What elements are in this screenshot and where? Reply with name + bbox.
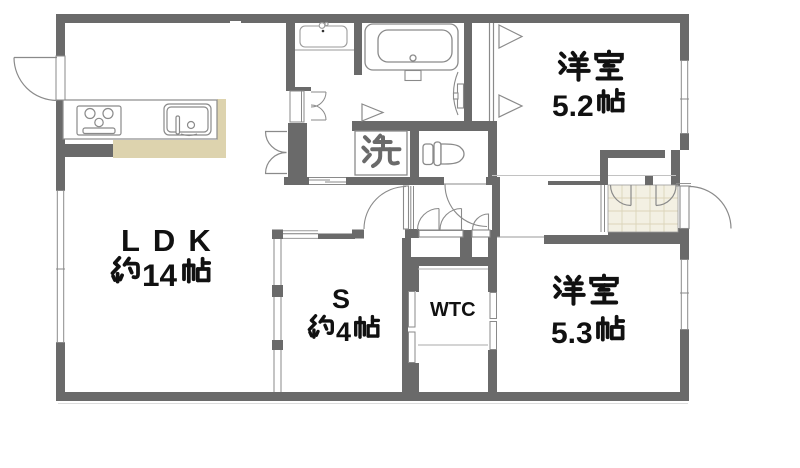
svg-text:S: S [332,284,350,314]
svg-text:WTC: WTC [430,299,476,321]
svg-text:4: 4 [336,317,351,347]
svg-text:5.2: 5.2 [552,90,594,123]
svg-text:5.3: 5.3 [551,317,593,350]
svg-text:14: 14 [142,257,178,293]
svg-text:LDK: LDK [121,223,224,258]
